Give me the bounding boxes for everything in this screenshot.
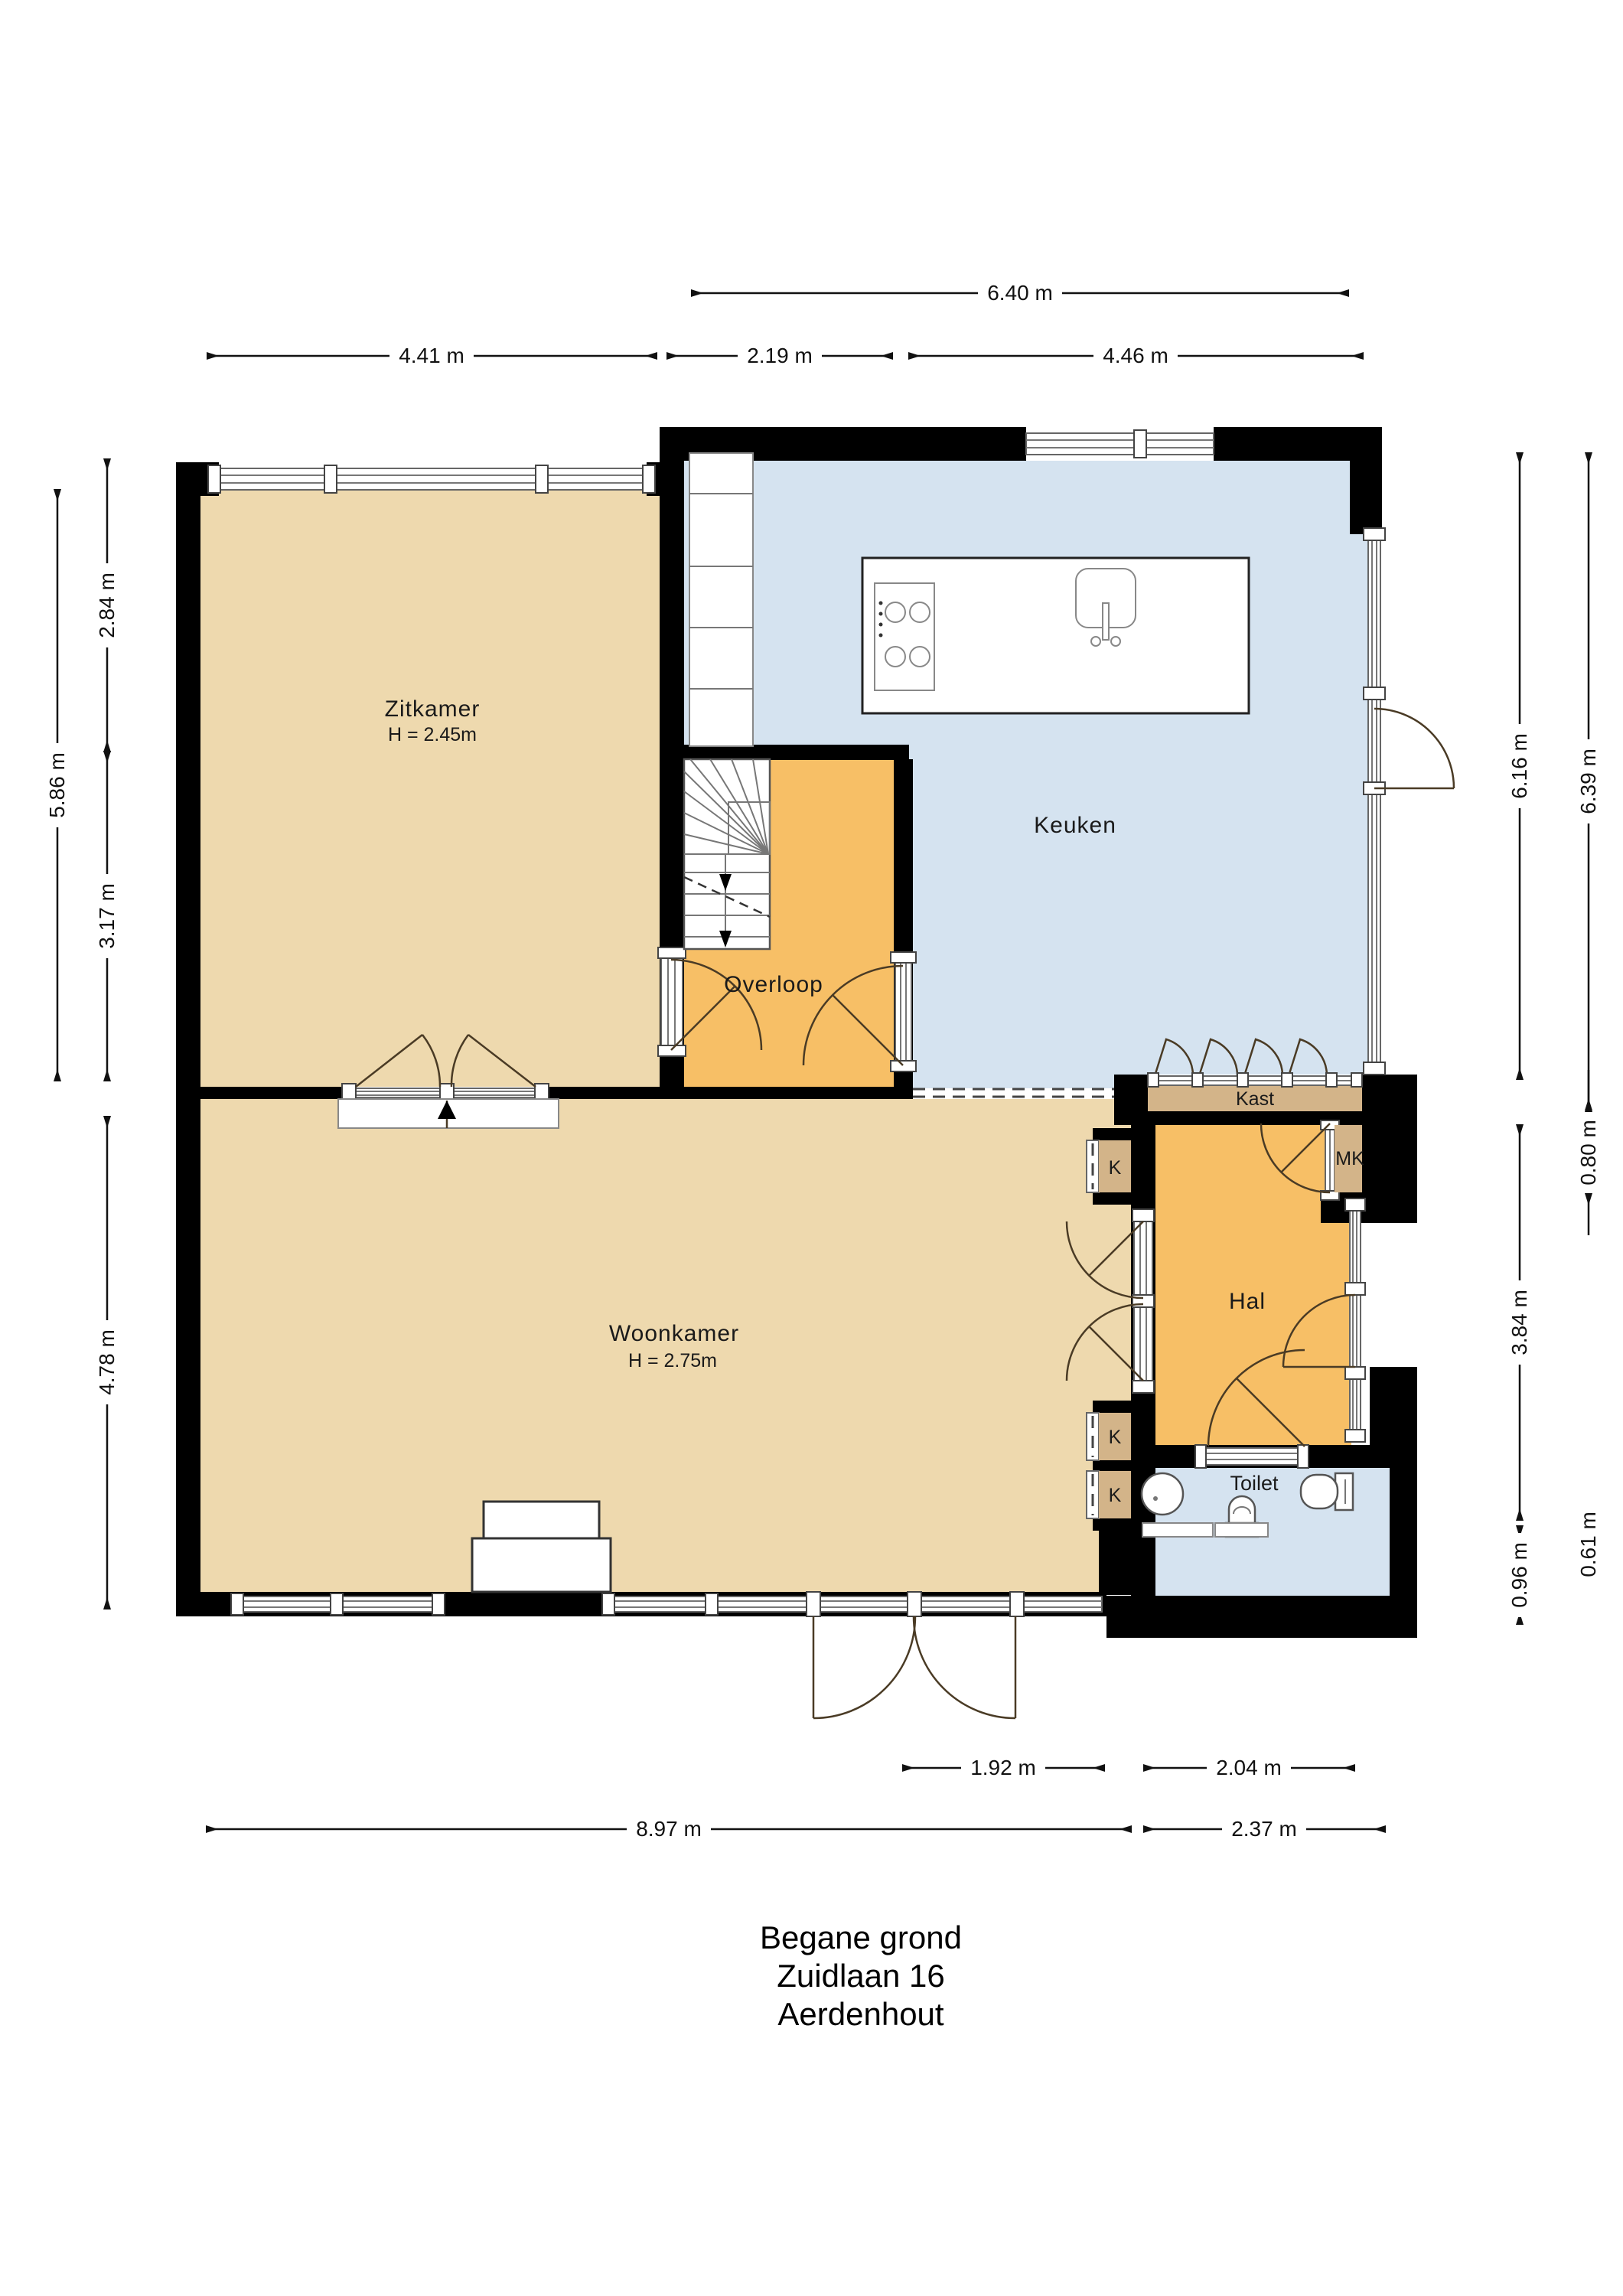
dim-label: 2.84 m	[95, 572, 119, 638]
zitkamer-window	[208, 465, 655, 493]
dim-right-offset: 0.61 m	[1576, 1512, 1600, 1577]
kitchen-island	[862, 558, 1249, 713]
cooktop-icon	[875, 583, 934, 690]
keuken-label: Keuken	[1034, 813, 1116, 838]
dim-bottom-right: 2.37 m	[1144, 1817, 1385, 1841]
toilet-ledge	[1142, 1523, 1213, 1537]
woonkamer-label: Woonkamer	[609, 1321, 739, 1346]
hal-label: Hal	[1229, 1289, 1266, 1314]
dim-left-upper: 2.84 m	[95, 459, 119, 752]
dim-label: 6.40 m	[987, 281, 1053, 305]
dim-label: 2.37 m	[1231, 1817, 1297, 1841]
dim-label: 0.61 m	[1576, 1512, 1600, 1577]
toilet-ledge	[1215, 1523, 1268, 1537]
woonkamer-window-right	[1022, 1596, 1102, 1612]
kitchen-cabinets	[689, 453, 753, 746]
west-wall	[176, 462, 200, 1616]
dim-bottom-total: 8.97 m	[207, 1817, 1131, 1841]
dim-left-total: 5.86 m	[45, 490, 70, 1081]
dim-label: 8.97 m	[636, 1817, 702, 1841]
closet-k1-label: K	[1109, 1157, 1122, 1179]
dim-bottom-toilet: 2.04 m	[1144, 1756, 1354, 1780]
dim-label: 3.84 m	[1507, 1290, 1531, 1355]
step-marker	[338, 1099, 559, 1128]
dim-right-keuken: 6.16 m	[1507, 453, 1532, 1079]
fireplace	[472, 1502, 611, 1592]
title-floor: Begane grond	[760, 1919, 962, 1955]
washbasin-icon	[1142, 1473, 1183, 1515]
dim-label: 1.92 m	[970, 1756, 1036, 1779]
keuken-exterior-door	[1374, 709, 1454, 788]
dim-label: 2.04 m	[1216, 1756, 1282, 1779]
open-connection-dashed	[913, 1089, 1114, 1097]
floorplan-begane-grond: Zitkamer H = 2.45m Keuken Overloop Woonk…	[0, 0, 1623, 2296]
zitkamer-label: Zitkamer	[385, 696, 481, 722]
closet-k3-label: K	[1109, 1485, 1122, 1506]
dim-right-keuken-outer: 6.39 m	[1576, 453, 1601, 1110]
dim-label: 4.41 m	[399, 344, 464, 367]
title-city: Aerdenhout	[777, 1996, 944, 2032]
overloop-label: Overloop	[724, 972, 823, 997]
toilet-label: Toilet	[1230, 1472, 1279, 1495]
dim-left-woonkamer: 4.78 m	[95, 1117, 119, 1609]
dim-right-toilet: 0.96 m	[1507, 1526, 1532, 1624]
dim-label: 4.46 m	[1103, 344, 1168, 367]
dim-top-overloop: 2.19 m	[667, 344, 892, 368]
title-block: Begane grond Zuidlaan 16 Aerdenhout	[760, 1919, 962, 2032]
mk-label: MK	[1335, 1148, 1364, 1169]
dim-label: 6.39 m	[1576, 748, 1600, 814]
dim-bottom-door: 1.92 m	[903, 1756, 1104, 1780]
kast-label: Kast	[1236, 1088, 1274, 1110]
dim-label: 0.96 m	[1507, 1542, 1531, 1608]
woonkamer-window-left	[231, 1593, 445, 1615]
closet-k2-label: K	[1109, 1427, 1122, 1448]
toilet-bottom-wall	[1106, 1596, 1417, 1638]
staircase	[684, 759, 770, 949]
dim-right-kast: 0.80 m	[1576, 1070, 1600, 1235]
dim-label: 5.86 m	[45, 752, 69, 818]
dim-label: 3.17 m	[95, 883, 119, 949]
dim-top-total: 6.40 m	[692, 281, 1348, 305]
entrance-doors	[807, 1592, 1024, 1718]
zitkamer-height-label: H = 2.45m	[388, 724, 477, 745]
woonkamer-window-mid	[602, 1593, 813, 1615]
keuken-window	[1026, 430, 1214, 458]
dim-left-lower: 3.17 m	[95, 752, 119, 1081]
dim-top-keuken: 4.46 m	[909, 344, 1363, 368]
dim-label: 2.19 m	[747, 344, 813, 367]
hal-floor	[1155, 1125, 1351, 1445]
zitkamer-floor	[200, 487, 660, 1087]
dim-label: 4.78 m	[95, 1329, 119, 1395]
dim-top-zitkamer: 4.41 m	[207, 344, 657, 368]
wc2-icon	[1301, 1473, 1353, 1510]
title-street: Zuidlaan 16	[777, 1958, 945, 1994]
dim-label: 6.16 m	[1507, 733, 1531, 799]
dim-right-hal: 3.84 m	[1507, 1125, 1532, 1520]
woonkamer-height-label: H = 2.75m	[628, 1350, 717, 1371]
dim-label: 0.80 m	[1576, 1120, 1600, 1186]
